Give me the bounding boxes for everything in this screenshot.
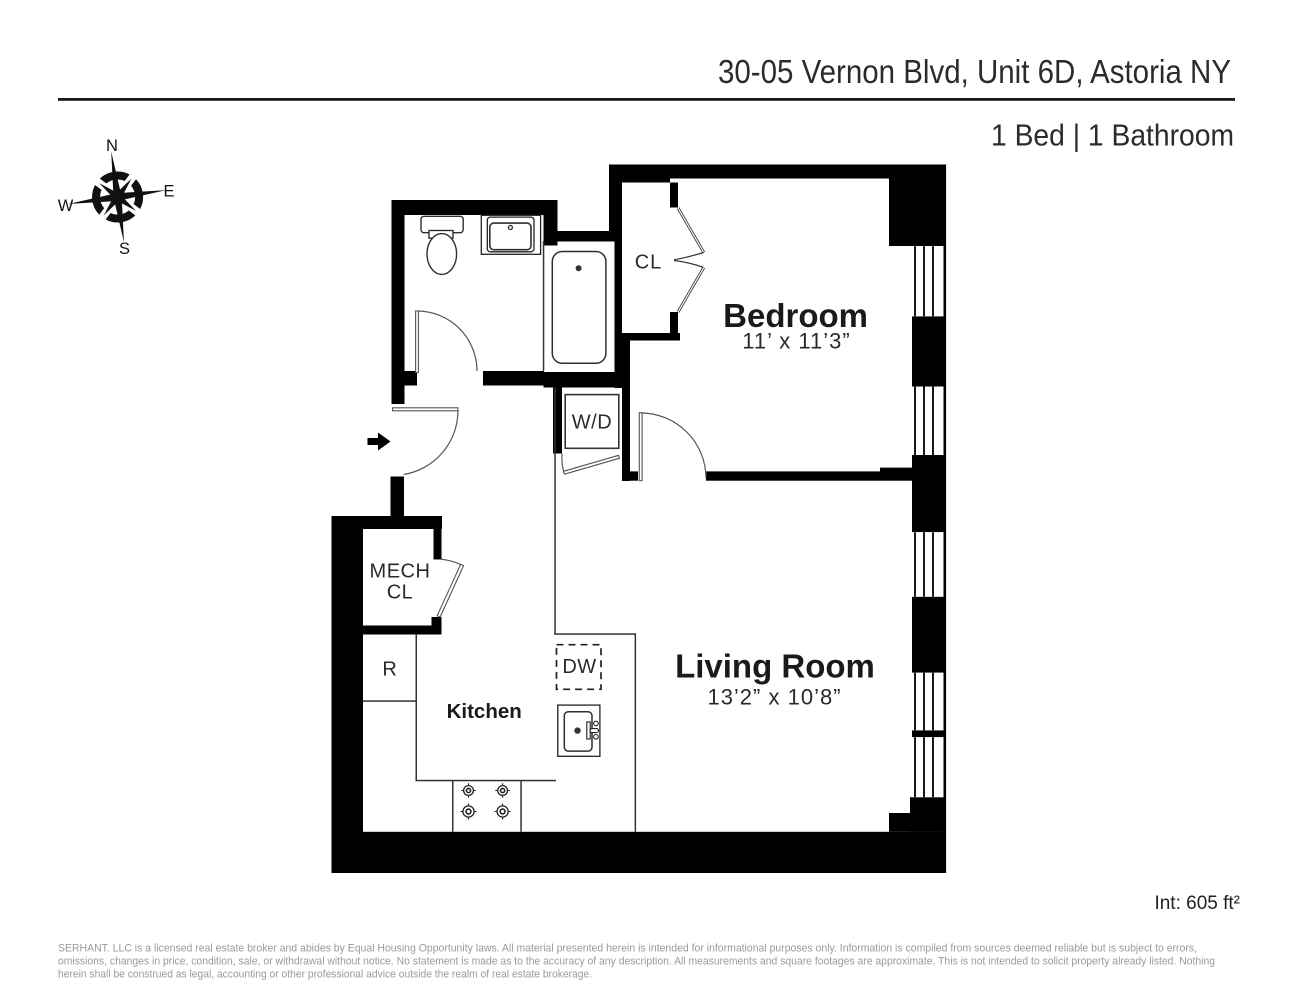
svg-text:Int: 605 ft²: Int: 605 ft² [1154, 893, 1240, 914]
svg-text:MECH: MECH [370, 561, 431, 583]
svg-text:DW: DW [562, 656, 596, 678]
svg-text:CL: CL [635, 251, 663, 273]
svg-text:herein shall be construed as l: herein shall be construed as legal, acco… [58, 969, 592, 981]
svg-text:E: E [163, 183, 174, 201]
svg-text:Living Room: Living Room [675, 648, 875, 685]
svg-text:N: N [106, 137, 118, 155]
svg-text:13’2” x 10’8”: 13’2” x 10’8” [707, 685, 841, 710]
svg-text:CL: CL [387, 581, 414, 603]
svg-text:W/D: W/D [572, 412, 612, 434]
svg-text:SERHANT. LLC is a licensed rea: SERHANT. LLC is a licensed real estate b… [58, 943, 1197, 955]
svg-text:11’ x 11’3”: 11’ x 11’3” [742, 329, 850, 354]
svg-text:Kitchen: Kitchen [447, 700, 522, 723]
svg-text:omissions, changes in price, c: omissions, changes in price, condition, … [58, 956, 1215, 968]
svg-text:30-05 Vernon Blvd, Unit 6D, As: 30-05 Vernon Blvd, Unit 6D, Astoria NY [718, 53, 1231, 90]
svg-text:R: R [382, 659, 396, 681]
svg-text:S: S [119, 240, 130, 258]
svg-text:1 Bed | 1 Bathroom: 1 Bed | 1 Bathroom [991, 119, 1234, 153]
svg-text:W: W [58, 197, 74, 215]
